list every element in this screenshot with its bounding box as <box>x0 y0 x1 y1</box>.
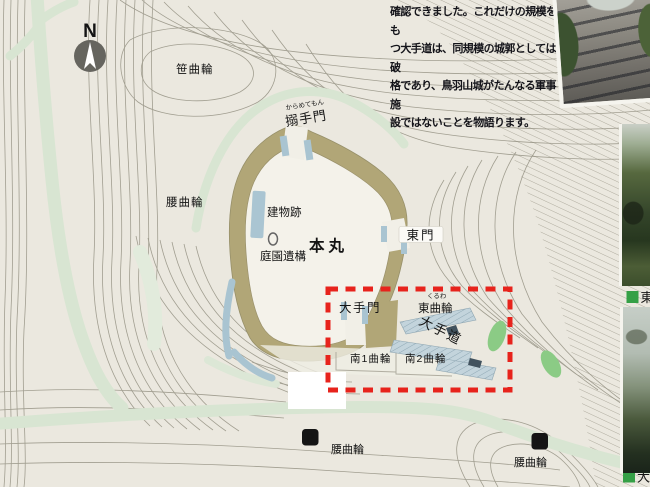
legend-east-label: 東 <box>641 290 650 305</box>
label-koshi-kuruwa-southeast: 腰曲輪 <box>514 455 547 469</box>
label-koshi-kuruwa-west: 腰曲輪 <box>166 195 204 209</box>
label-minami-2-kuruwa: 南2曲輪 <box>405 352 446 365</box>
label-minami-1-kuruwa: 南1曲輪 <box>350 352 391 365</box>
label-tatemono-ato: 建物跡 <box>267 205 302 219</box>
parking-label-2: P <box>536 437 544 449</box>
caption-text: 確認できました。これだけの規模をも つ大手道は、同規模の城郭としては破 格であり… <box>390 3 564 133</box>
stone-path-photo <box>552 0 650 108</box>
legend-square-icon <box>627 291 639 303</box>
caption-line-2: つ大手道は、同規模の城郭としては破 <box>390 40 564 77</box>
caption-line-3: 格であり、鳥羽山城がたんなる軍事施 <box>390 77 564 114</box>
label-koshi-kuruwa-south: 腰曲輪 <box>331 442 364 456</box>
castle-map-signboard: N 笹曲輪 腰曲輪 からめてもん 搦手門 建物跡 本丸 庭園遺構 東門 大手門 … <box>0 0 650 487</box>
label-higashi-kuruwa-furigana: くるわ <box>427 292 447 300</box>
label-teien-iko: 庭園遺構 <box>260 249 306 263</box>
label-sasa-kuruwa: 笹曲輪 <box>176 62 214 76</box>
label-higashi-mon: 東門 <box>406 229 435 243</box>
garden-trees-photo <box>619 124 650 286</box>
parking-label-1: P <box>306 433 314 445</box>
caption-line-1: 確認できました。これだけの規模をも <box>390 3 564 40</box>
label-honmaru: 本丸 <box>309 236 348 255</box>
building-remains-marker <box>250 191 265 239</box>
trees-sky-photo <box>620 307 650 473</box>
caption-line-4: 設ではないことを物語ります。 <box>390 114 564 133</box>
north-label: N <box>83 21 97 42</box>
garden-remains-icon <box>269 233 278 245</box>
label-ote-mon: 大手門 <box>339 301 381 315</box>
